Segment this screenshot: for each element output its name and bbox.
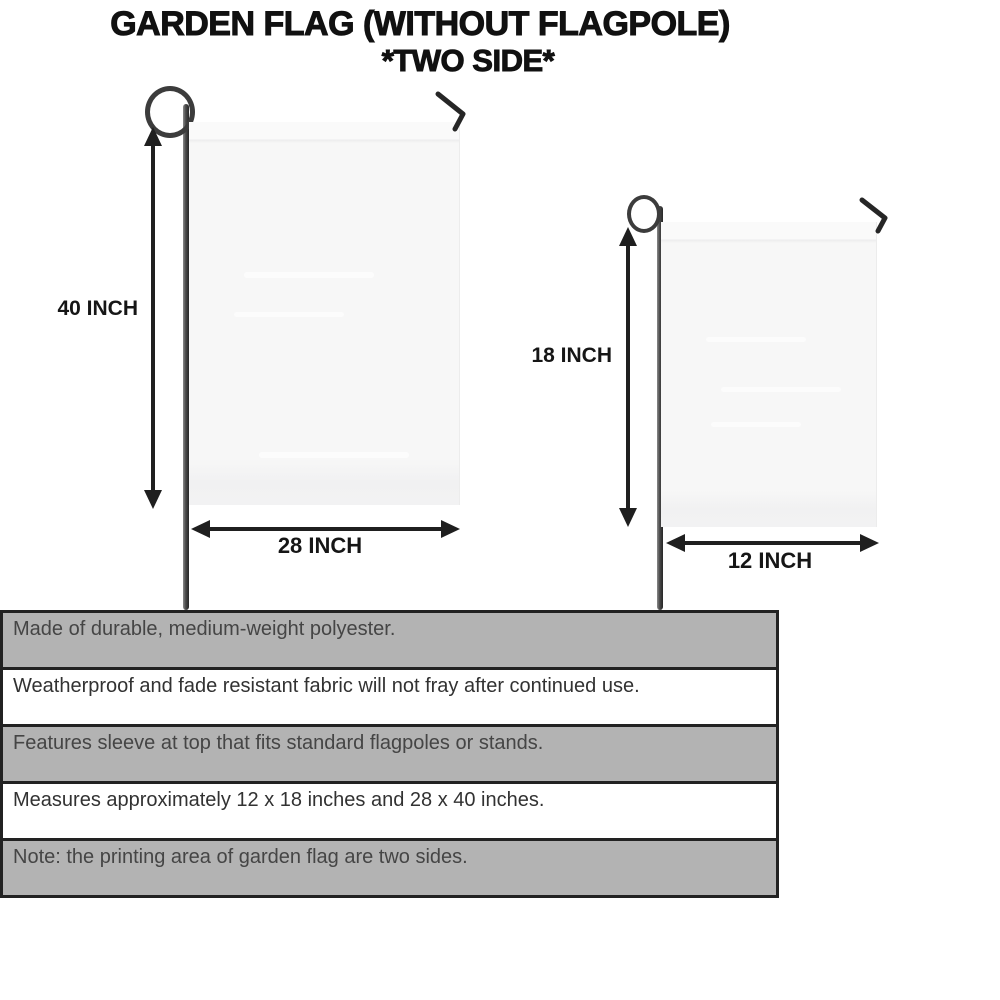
feature-row-sleeve: Features sleeve at top that fits standar… <box>3 724 776 781</box>
small-flag-fabric <box>661 222 877 527</box>
fabric-streak <box>721 387 841 392</box>
large-flag-fabric <box>189 122 460 505</box>
fabric-streak <box>711 422 801 427</box>
feature-row-material: Made of durable, medium-weight polyester… <box>3 613 776 667</box>
small-flag-height-arrow <box>616 226 640 528</box>
page-title: GARDEN FLAG (WITHOUT FLAGPOLE) <box>20 5 820 44</box>
fabric-streak <box>706 337 806 342</box>
small-flag-width-label: 12 INCH <box>705 548 835 574</box>
fabric-streak <box>259 452 409 458</box>
feature-row-weatherproof: Weatherproof and fade resistant fabric w… <box>3 667 776 724</box>
large-flag-width-label: 28 INCH <box>255 533 385 559</box>
small-flag-height-label: 18 INCH <box>524 344 612 368</box>
hook-icon <box>432 88 472 132</box>
hook-icon <box>857 194 893 234</box>
large-flag-height-arrow <box>141 126 165 510</box>
fabric-streak <box>244 272 374 278</box>
page-subtitle: *TWO SIDE* <box>68 43 868 79</box>
large-flag-height-label: 40 INCH <box>50 297 138 321</box>
feature-row-measures: Measures approximately 12 x 18 inches an… <box>3 781 776 838</box>
fabric-streak <box>234 312 344 317</box>
feature-row-note: Note: the printing area of garden flag a… <box>3 838 776 895</box>
feature-table: Made of durable, medium-weight polyester… <box>0 610 779 898</box>
